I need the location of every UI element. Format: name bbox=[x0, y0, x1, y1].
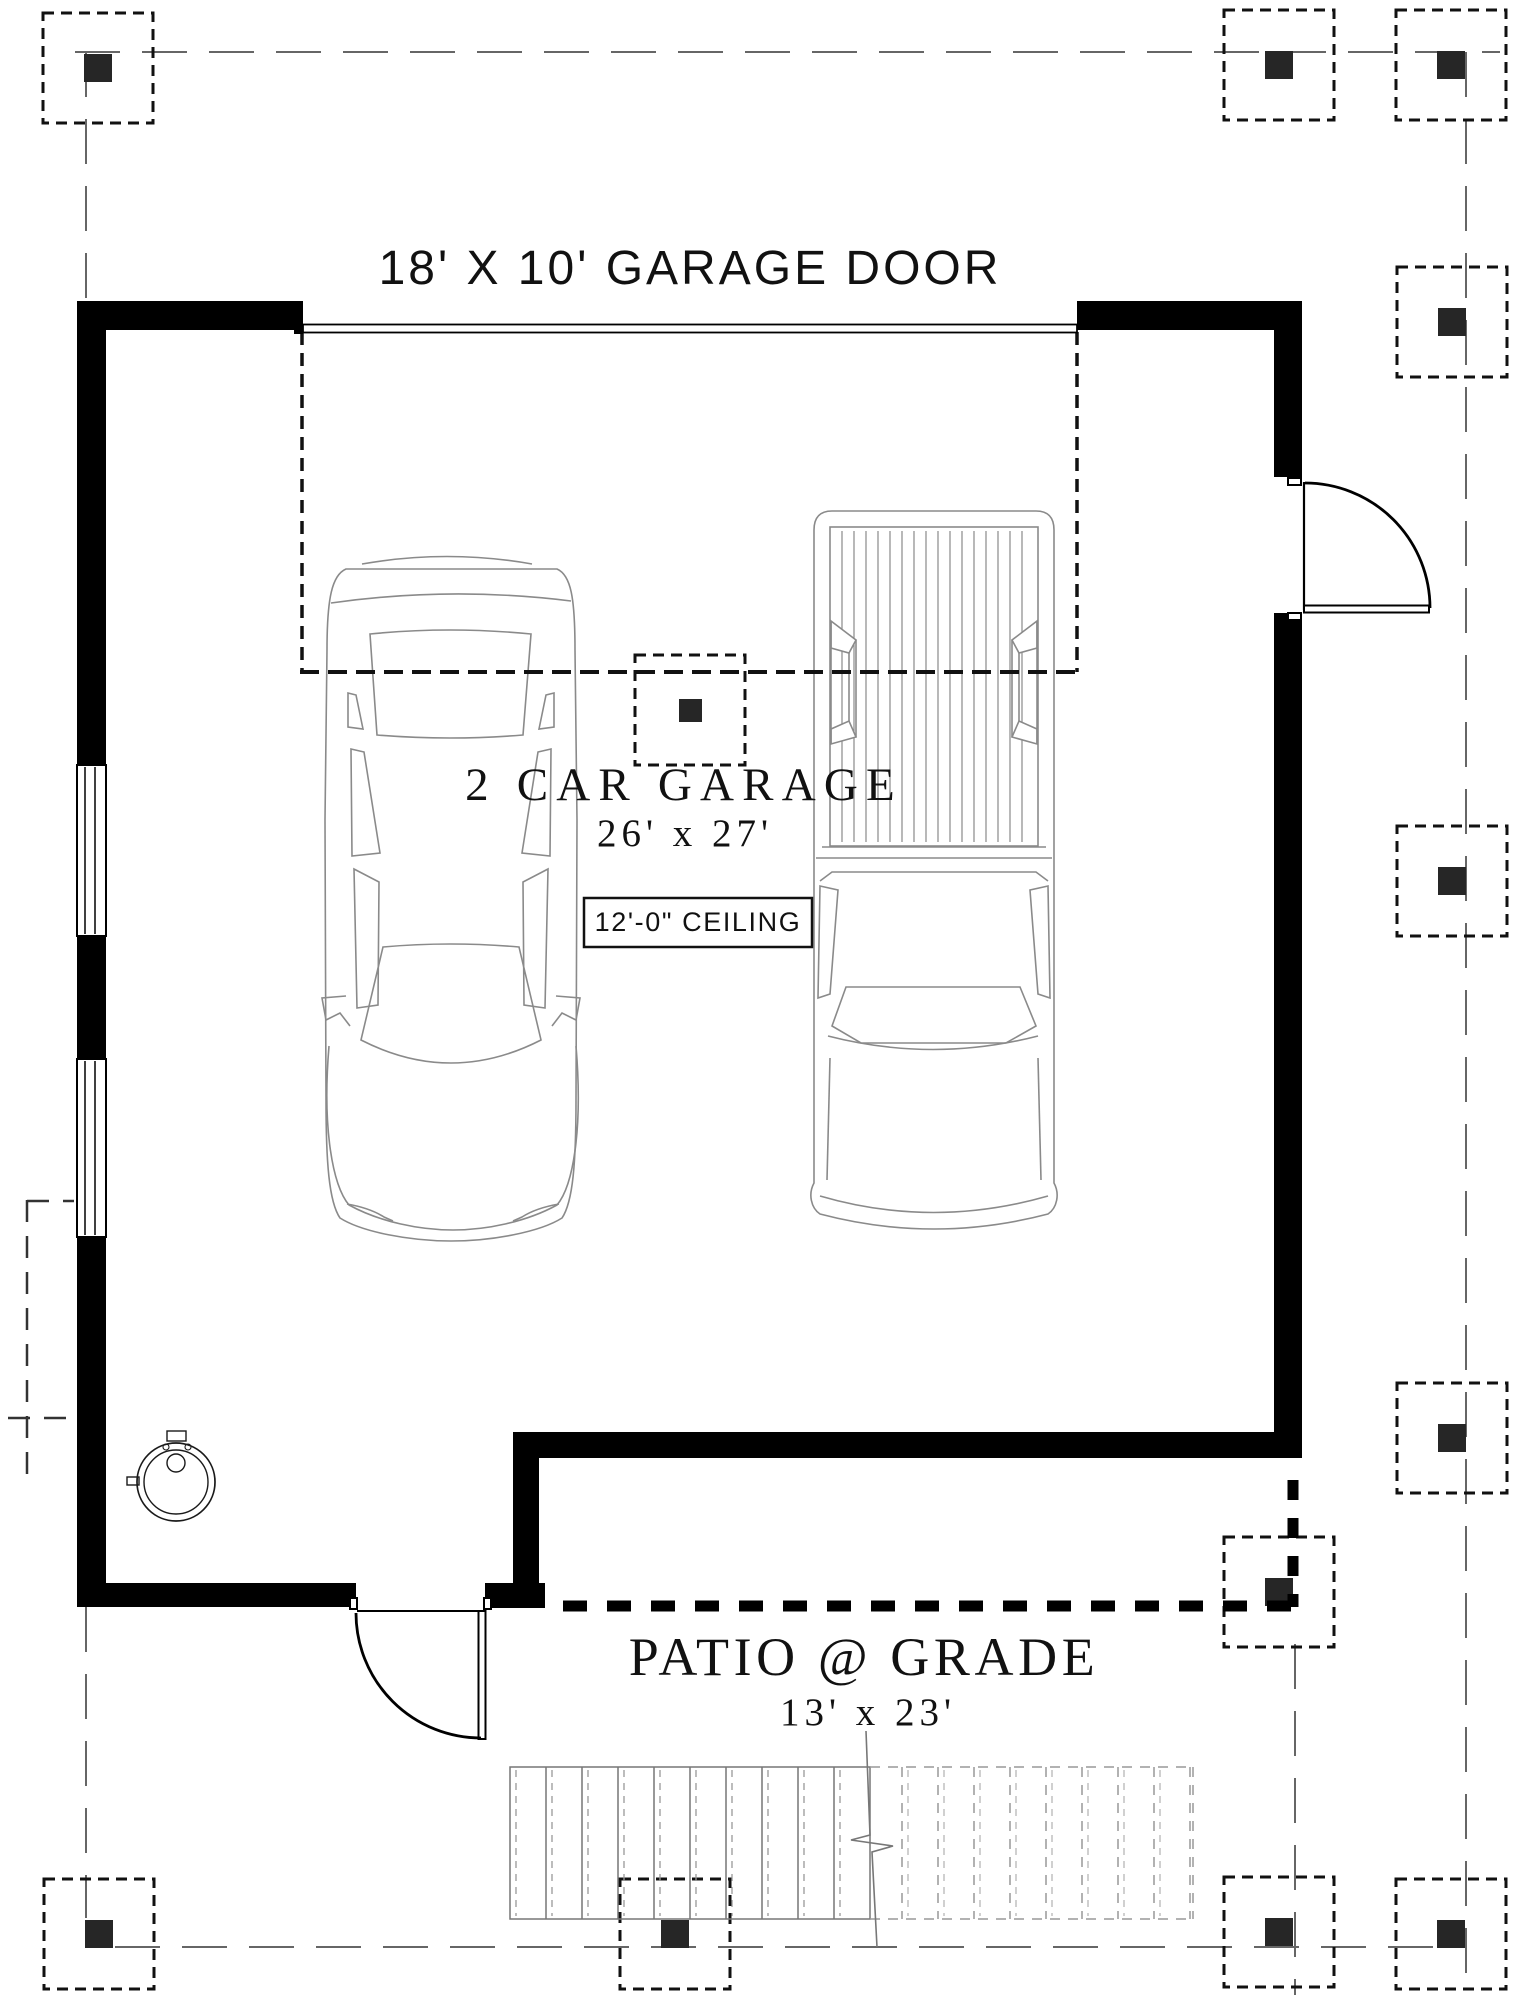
svg-text:26' x 27': 26' x 27' bbox=[597, 812, 773, 855]
svg-text:12'-0" CEILING: 12'-0" CEILING bbox=[595, 907, 802, 937]
svg-text:18' X 10' GARAGE DOOR: 18' X 10' GARAGE DOOR bbox=[379, 242, 1002, 295]
svg-text:2 CAR GARAGE: 2 CAR GARAGE bbox=[465, 759, 903, 811]
svg-text:13' x 23': 13' x 23' bbox=[780, 1691, 956, 1734]
svg-text:PATIO @ GRADE: PATIO @ GRADE bbox=[629, 1627, 1100, 1687]
